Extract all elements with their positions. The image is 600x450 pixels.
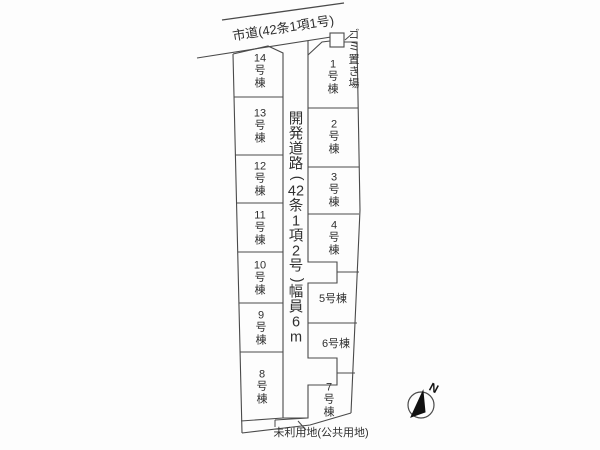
lot-label-1: 1号棟: [328, 59, 339, 96]
site-plan: N 市道(42条1項1号) ゴミ置き場 開発道路(42条1項2号)幅員6m 14…: [0, 0, 600, 450]
compass-n-label: N: [427, 380, 441, 396]
lot-label-14: 14号棟: [254, 53, 266, 90]
lot-label-5: 5号棟: [319, 290, 347, 306]
lot-label-10: 10号棟: [254, 260, 266, 297]
unused-land-label: 未利用地(公共用地): [273, 424, 368, 440]
lot-label-4: 4号棟: [329, 220, 340, 257]
lot-label-7: 7号棟: [324, 382, 335, 419]
compass-north-icon: N: [408, 380, 441, 418]
lot-label-6: 6号棟: [322, 335, 350, 351]
lot-label-12: 12号棟: [254, 161, 266, 198]
lot-label-11: 11号棟: [254, 210, 265, 247]
garbage-area-square: [330, 33, 344, 47]
lot-label-13: 13号棟: [254, 108, 266, 145]
garbage-area-label: ゴミ置き場: [349, 29, 360, 91]
lot-label-3: 3号棟: [329, 172, 340, 209]
lot-label-9: 9号棟: [256, 310, 267, 347]
dev-road-label: 開発道路(42条1項2号)幅員6m: [288, 112, 304, 345]
lot-label-2: 2号棟: [329, 119, 340, 156]
lot-label-8: 8号棟: [257, 369, 268, 406]
